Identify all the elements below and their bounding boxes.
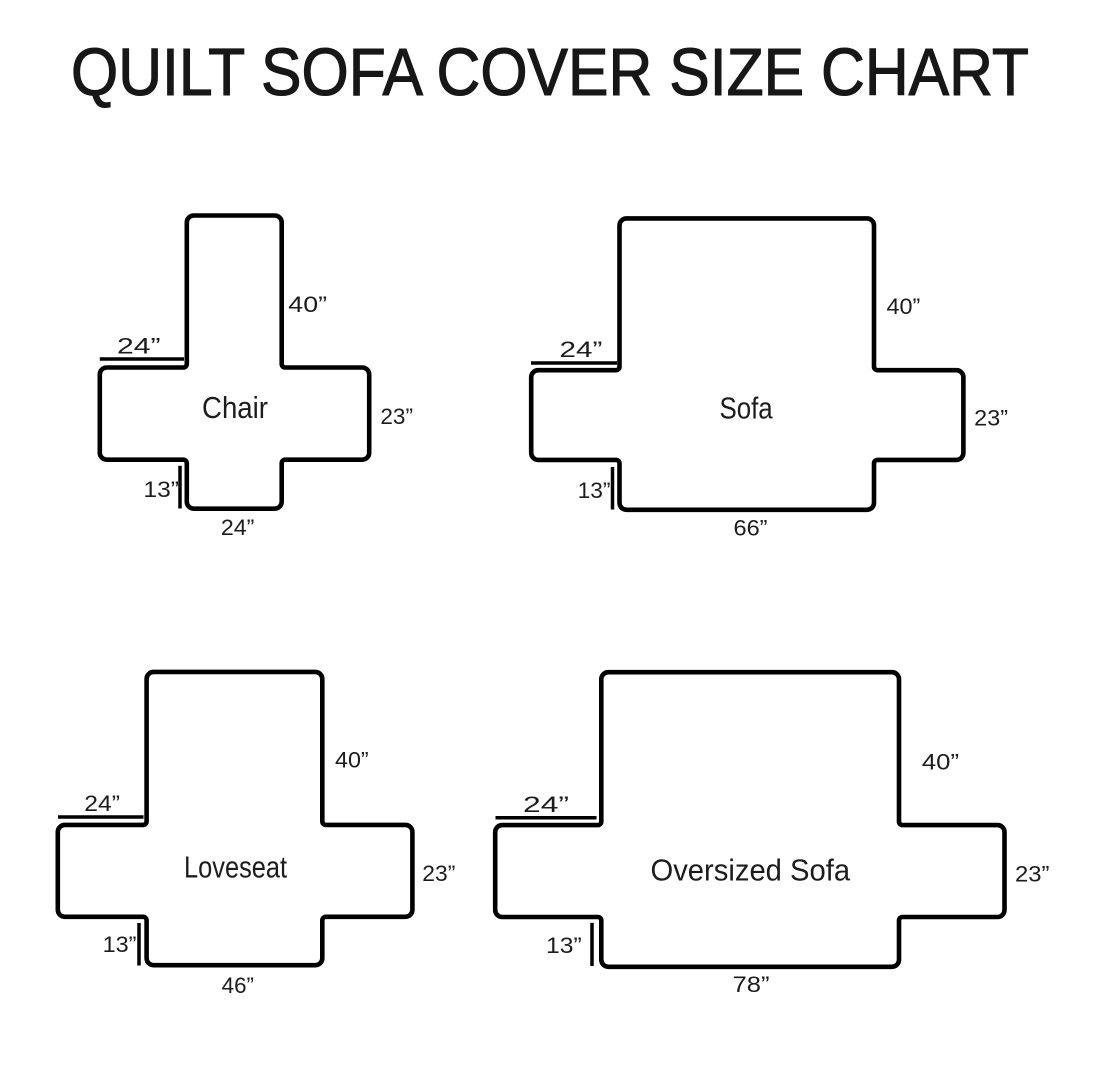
svg-text:24”: 24” bbox=[221, 515, 255, 540]
svg-text:46”: 46” bbox=[222, 973, 254, 998]
svg-text:Sofa: Sofa bbox=[720, 391, 774, 426]
svg-text:Oversized Sofa: Oversized Sofa bbox=[651, 853, 851, 888]
svg-text:23”: 23” bbox=[422, 861, 455, 886]
svg-text:23”: 23” bbox=[1015, 862, 1050, 887]
svg-text:Loveseat: Loveseat bbox=[184, 850, 287, 885]
svg-text:40”: 40” bbox=[335, 748, 369, 773]
svg-text:40”: 40” bbox=[922, 750, 959, 775]
svg-text:24”: 24” bbox=[117, 334, 161, 359]
svg-text:24”: 24” bbox=[84, 791, 120, 816]
svg-text:13”: 13” bbox=[546, 933, 582, 958]
svg-text:78”: 78” bbox=[733, 972, 770, 997]
svg-text:24”: 24” bbox=[523, 792, 569, 817]
svg-text:Chair: Chair bbox=[202, 390, 268, 425]
svg-text:40”: 40” bbox=[887, 294, 921, 319]
svg-text:40”: 40” bbox=[288, 292, 327, 317]
svg-text:13”: 13” bbox=[578, 478, 611, 503]
svg-text:13”: 13” bbox=[103, 932, 137, 957]
svg-text:23”: 23” bbox=[380, 404, 413, 429]
svg-text:QUILT SOFA COVER SIZE CHART: QUILT SOFA COVER SIZE CHART bbox=[71, 35, 1029, 110]
svg-text:23”: 23” bbox=[974, 406, 1008, 431]
svg-text:66”: 66” bbox=[734, 516, 768, 541]
svg-text:24”: 24” bbox=[560, 337, 603, 362]
svg-text:13”: 13” bbox=[143, 477, 179, 502]
